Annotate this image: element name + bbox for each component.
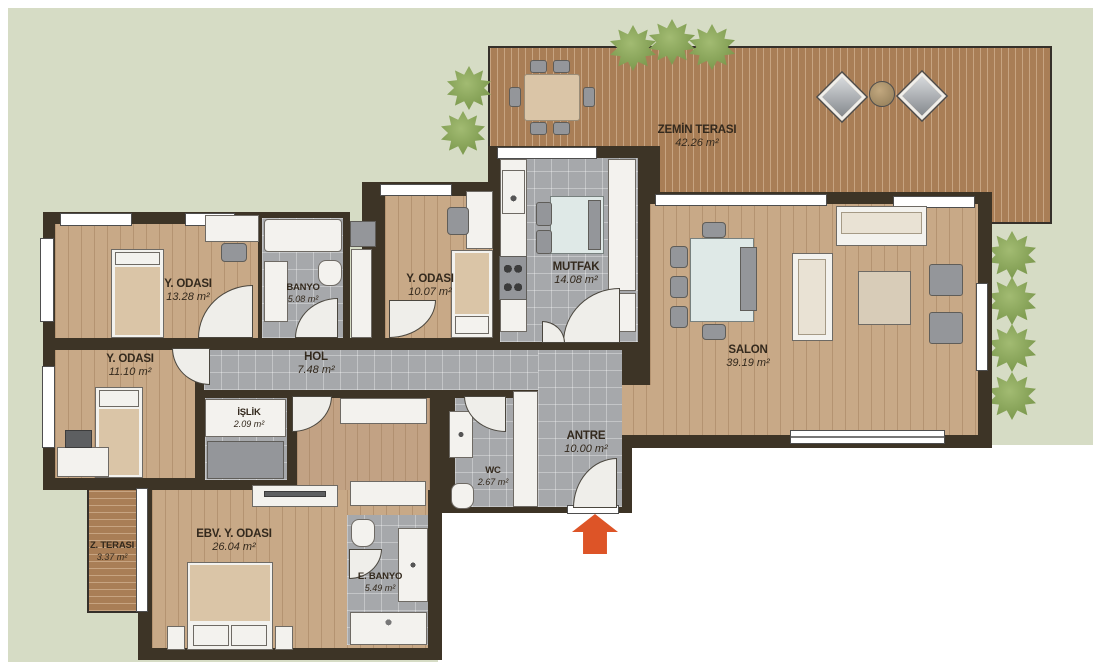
bed-blanket: [190, 565, 270, 621]
coffee-table: [858, 271, 911, 325]
window: [40, 238, 54, 322]
living-room-opening: [620, 385, 654, 435]
terrace-chair: [530, 122, 547, 135]
room-area: 5.08 m²: [286, 294, 319, 304]
chair: [702, 324, 726, 340]
window: [655, 194, 827, 206]
kitchen-sink: [502, 170, 525, 214]
sliding-door: [790, 430, 945, 444]
chair: [702, 222, 726, 238]
cabinet: [350, 221, 376, 247]
window: [380, 184, 452, 196]
washer: [207, 441, 284, 479]
entry-arrow: [572, 514, 618, 554]
room-name: Y. ODASI: [164, 278, 212, 291]
room-name: ZEMİN TERASI: [658, 124, 737, 137]
room-area: 3.37 m²: [90, 552, 134, 562]
room-area: 39.19 m²: [726, 357, 769, 370]
room-area: 10.00 m²: [564, 443, 607, 456]
room-label-entry: ANTRE 10.00 m²: [564, 430, 607, 456]
desk: [205, 215, 259, 242]
sofa-cushions: [841, 212, 922, 234]
room-label-small-terrace: Z. TERASI 3.37 m²: [90, 541, 134, 562]
room-area: 7.48 m²: [297, 364, 334, 377]
room-label-ground-terrace: ZEMİN TERASI 42.26 m²: [658, 124, 737, 150]
terrace-door-window: [136, 488, 148, 612]
room-name: E. BANYO: [358, 572, 402, 583]
chair: [670, 246, 688, 268]
room-name: Y. ODASI: [106, 353, 154, 366]
shower-tub: [350, 612, 427, 645]
bed-pillow: [115, 252, 160, 265]
armchair: [929, 312, 963, 344]
terrace-chair: [530, 60, 547, 73]
room-label-master-bedroom: EBV. Y. ODASI 26.04 m²: [196, 528, 271, 554]
terrace-chair: [583, 87, 595, 107]
room-name: WC: [478, 466, 509, 477]
room-name: EBV. Y. ODASI: [196, 528, 271, 541]
window: [976, 283, 988, 371]
washbasin-cabinet: [264, 261, 288, 322]
bed-blanket: [455, 253, 489, 314]
room-label-hall: HOL 7.48 m²: [297, 351, 334, 377]
kitchen-counter: [608, 159, 636, 291]
washbasin-cabinet: [398, 528, 428, 602]
bench: [588, 200, 601, 250]
room-area: 14.08 m²: [553, 274, 600, 287]
room-area: 2.67 m²: [478, 477, 509, 487]
room-label-ensuite-bath: E. BANYO 5.49 m²: [358, 572, 402, 593]
wardrobe: [351, 249, 372, 338]
closet: [513, 391, 538, 507]
room-label-bathroom: BANYO 5.08 m²: [286, 283, 319, 304]
loveseat-cushions: [798, 259, 826, 335]
bed-pillow: [455, 316, 489, 334]
room-name: Y. ODASI: [406, 273, 454, 286]
chair: [670, 306, 688, 328]
bench: [740, 247, 757, 311]
closet: [340, 398, 427, 424]
room-name: HOL: [297, 351, 334, 364]
window: [497, 147, 597, 159]
washbasin-cabinet: [449, 411, 473, 458]
room-label-living-room: SALON 39.19 m²: [726, 344, 769, 370]
chair: [221, 243, 247, 262]
desk: [57, 447, 109, 477]
floor-plan: ZEMİN TERASI 42.26 m² Y. ODASI 13.28 m² …: [0, 0, 1100, 662]
toilet: [451, 483, 474, 509]
room-label-bedroom-2: Y. ODASI 10.07 m²: [406, 273, 454, 299]
room-name: Z. TERASI: [90, 541, 134, 552]
chair: [536, 202, 552, 226]
armchair: [929, 264, 963, 296]
desk: [466, 191, 493, 249]
nightstand: [275, 626, 293, 650]
room-area: 42.26 m²: [658, 137, 737, 150]
chair: [670, 276, 688, 298]
room-area: 2.09 m²: [234, 419, 265, 429]
stove: [499, 256, 527, 300]
room-area: 10.07 m²: [406, 286, 454, 299]
bed-pillow: [231, 625, 267, 646]
tv: [264, 491, 326, 497]
room-name: BANYO: [286, 283, 319, 294]
terrace-chair: [553, 122, 570, 135]
window: [42, 366, 55, 448]
room-name: SALON: [726, 344, 769, 357]
terrace-chair: [509, 87, 521, 107]
room-name: MUTFAK: [553, 261, 600, 274]
bed-pillow: [99, 390, 139, 407]
shelf: [350, 481, 426, 506]
bathtub: [264, 219, 342, 252]
room-area: 11.10 m²: [106, 366, 154, 379]
bed-blanket: [115, 267, 160, 335]
toilet: [318, 260, 342, 286]
monitor: [65, 430, 92, 448]
terrace-side-table: [869, 81, 895, 107]
room-label-wc: WC 2.67 m²: [478, 466, 509, 487]
room-area: 26.04 m²: [196, 541, 271, 554]
room-label-bedroom-3: Y. ODASI 11.10 m²: [106, 353, 154, 379]
terrace-chair: [553, 60, 570, 73]
toilet: [351, 519, 375, 547]
bed-pillow: [193, 625, 229, 646]
room-area: 5.49 m²: [358, 583, 402, 593]
terrace-dining-table: [524, 74, 580, 121]
nightstand: [167, 626, 185, 650]
room-label-kitchen: MUTFAK 14.08 m²: [553, 261, 600, 287]
room-name: İŞLİK: [234, 408, 265, 419]
window: [60, 213, 132, 226]
room-name: ANTRE: [564, 430, 607, 443]
room-label-workroom: İŞLİK 2.09 m²: [234, 408, 265, 429]
room-area: 13.28 m²: [164, 291, 212, 304]
room-label-bedroom-1: Y. ODASI 13.28 m²: [164, 278, 212, 304]
chair: [447, 207, 469, 235]
chair: [536, 230, 552, 254]
